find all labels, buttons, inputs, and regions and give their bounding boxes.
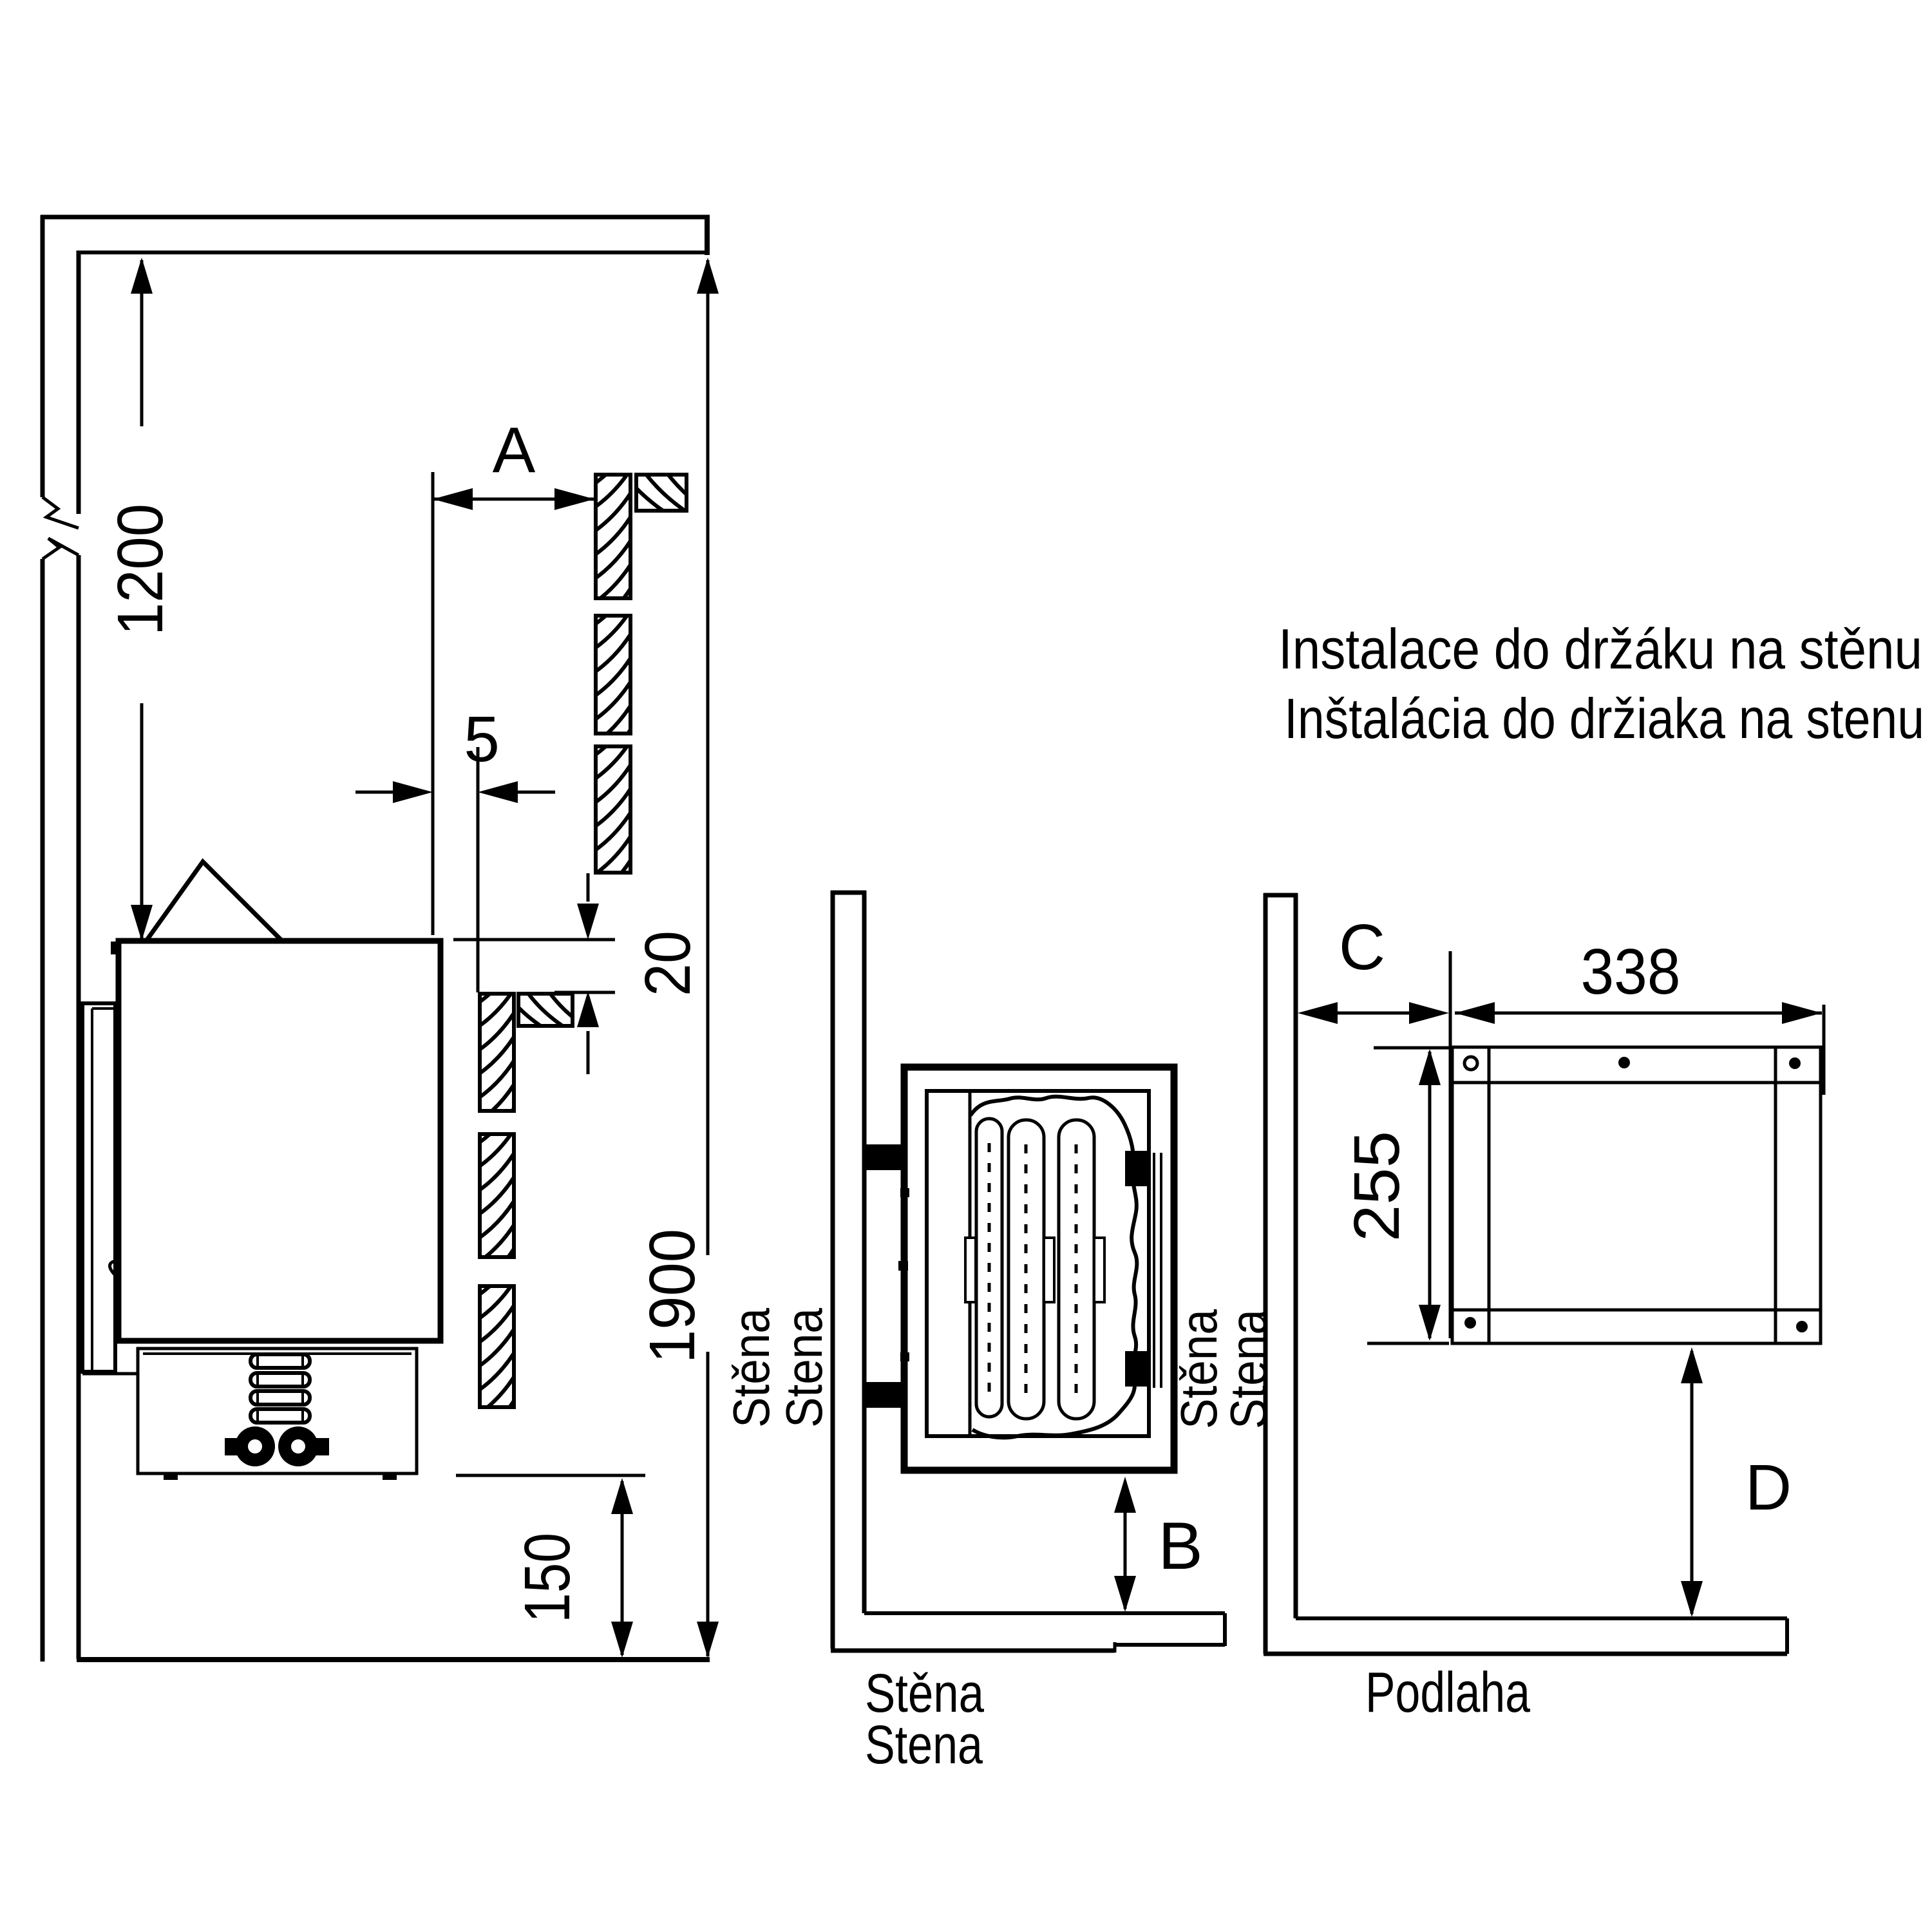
- svg-text:Stena: Stena: [865, 1714, 983, 1775]
- svg-text:D: D: [1745, 1452, 1792, 1524]
- svg-text:5: 5: [464, 703, 500, 775]
- svg-text:1200: 1200: [104, 504, 176, 636]
- svg-text:338: 338: [1581, 936, 1681, 1008]
- svg-text:Stěna: Stěna: [1170, 1309, 1227, 1429]
- svg-text:B: B: [1158, 1509, 1202, 1584]
- svg-text:1900: 1900: [636, 1229, 708, 1363]
- svg-text:Podlaha: Podlaha: [1365, 1660, 1530, 1724]
- svg-text:C: C: [1339, 911, 1385, 983]
- svg-text:Stěna: Stěna: [723, 1308, 780, 1428]
- svg-text:Instalace do držáku na stěnu: Instalace do držáku na stěnu: [1278, 617, 1922, 681]
- svg-text:A: A: [493, 414, 536, 486]
- svg-text:255: 255: [1341, 1131, 1413, 1242]
- svg-text:Stena: Stena: [1220, 1309, 1277, 1429]
- svg-text:150: 150: [511, 1533, 583, 1623]
- svg-text:Stena: Stena: [775, 1308, 833, 1428]
- svg-text:20: 20: [632, 931, 704, 996]
- svg-text:Inštalácia do držiaka na stenu: Inštalácia do držiaka na stenu: [1284, 687, 1924, 750]
